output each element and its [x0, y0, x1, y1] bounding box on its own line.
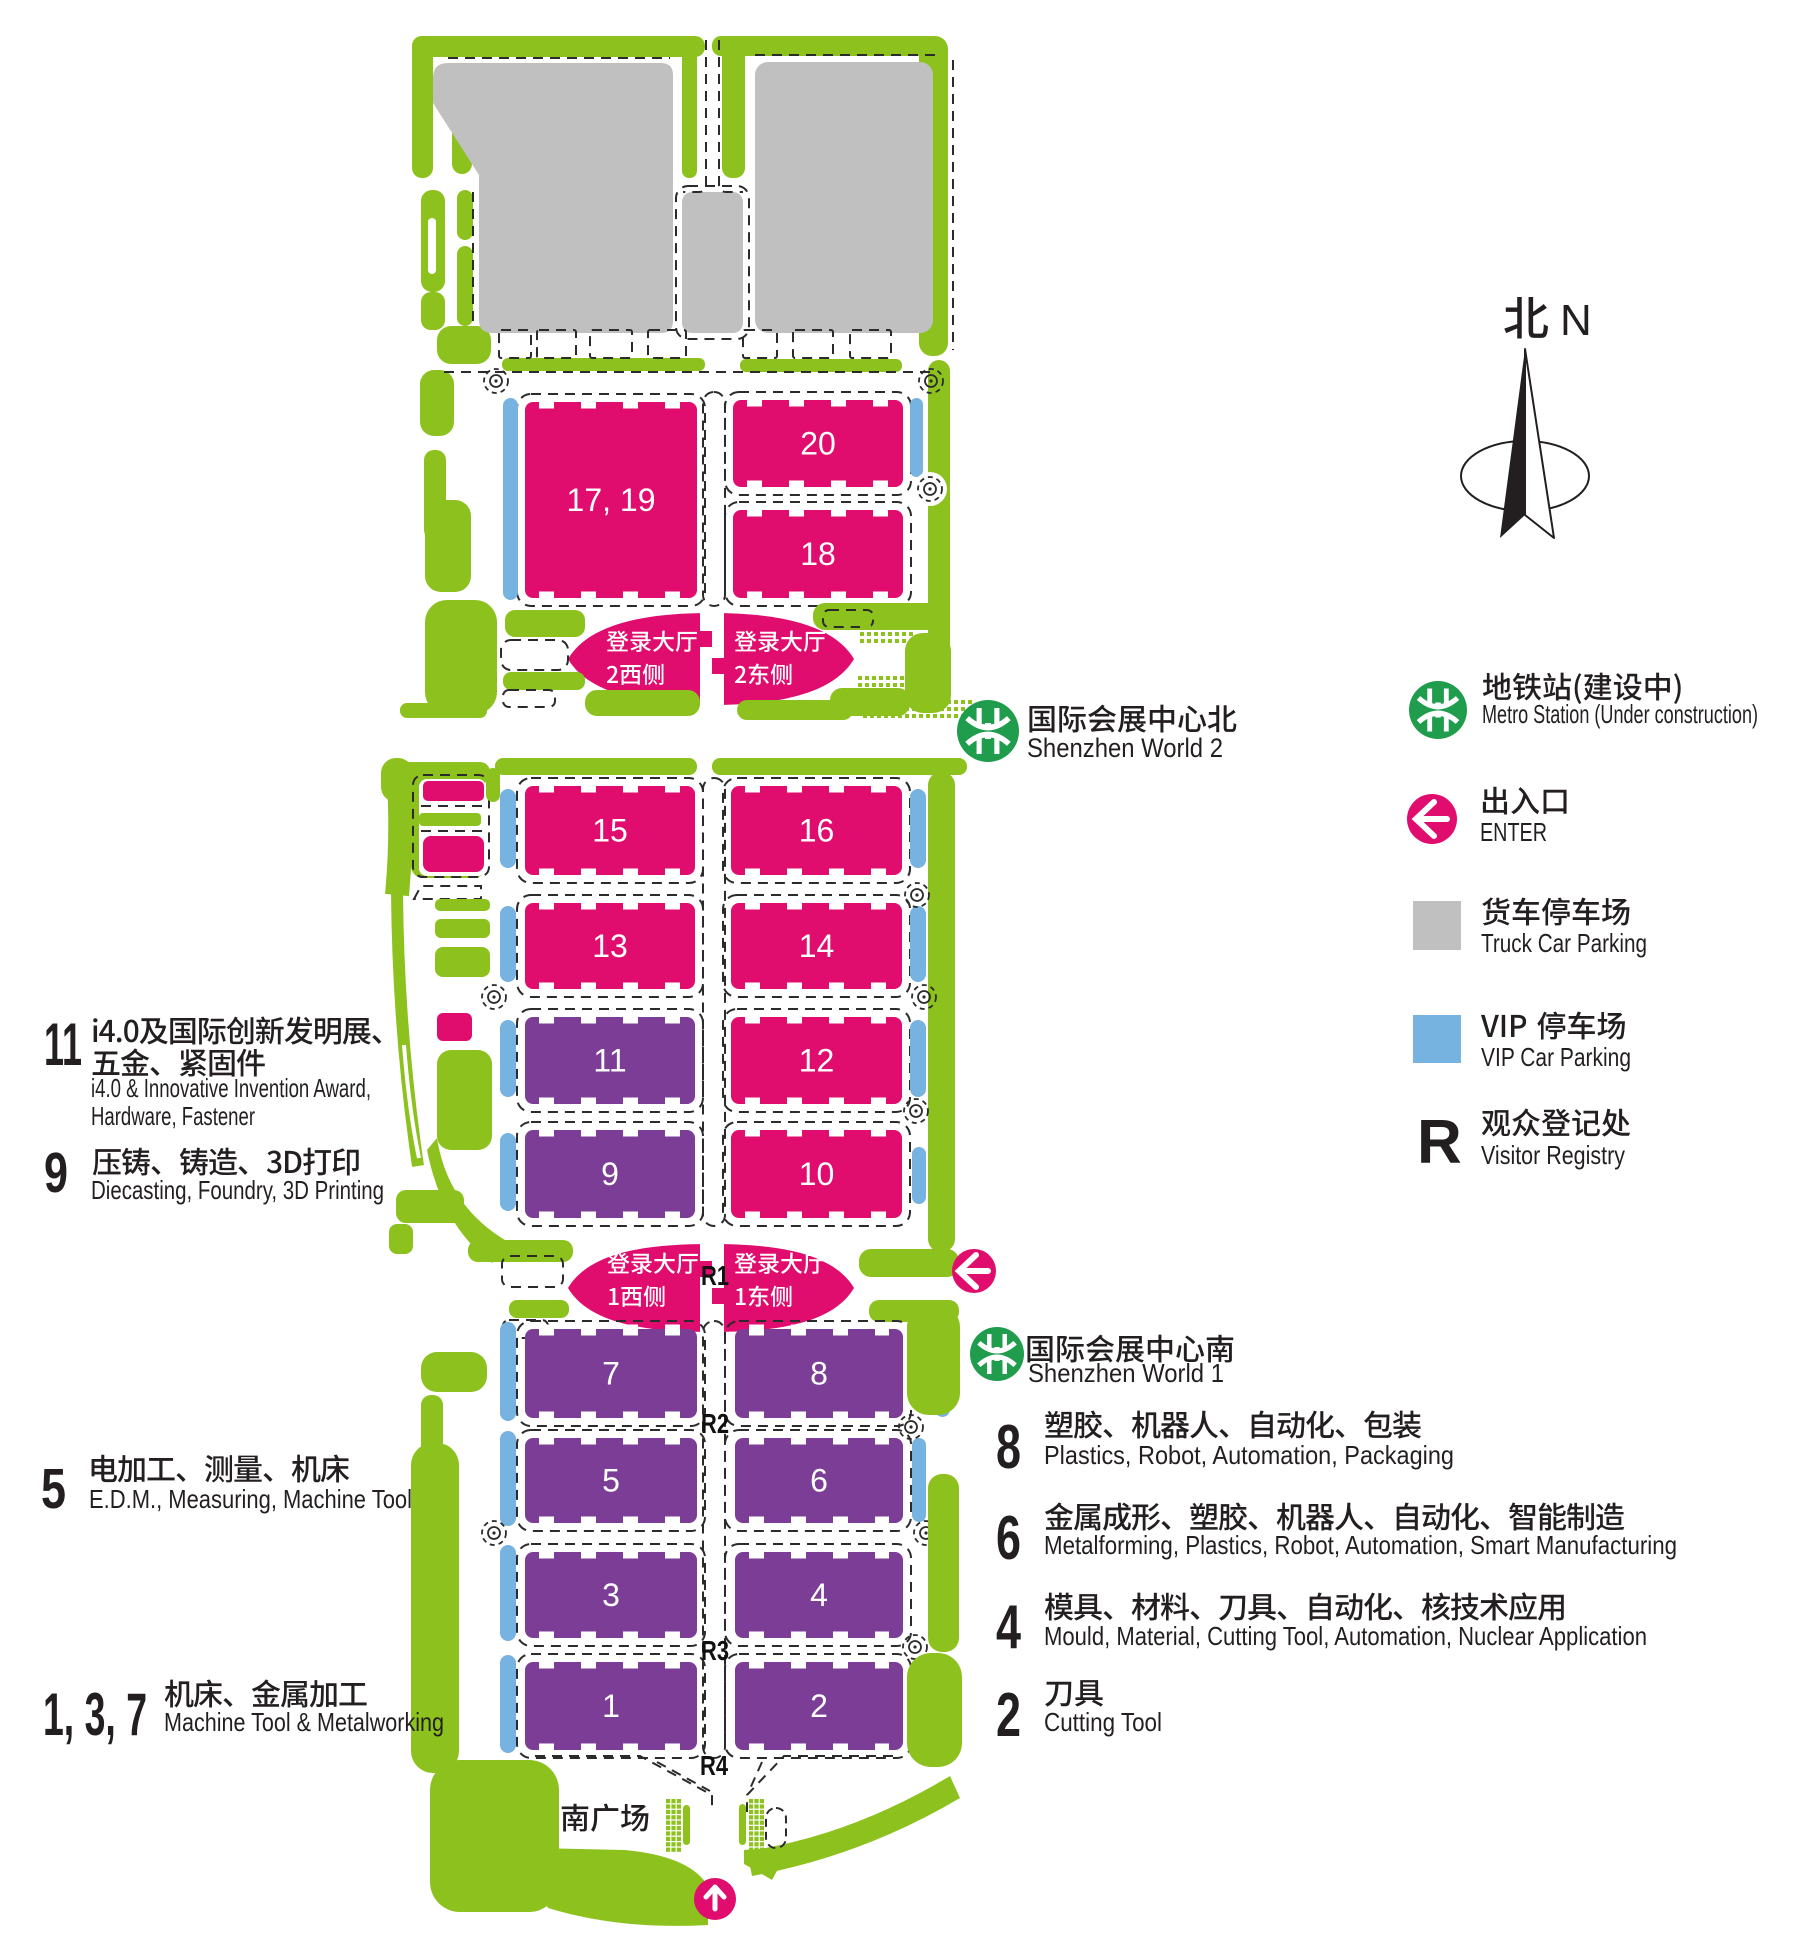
svg-text:11: 11 — [44, 1011, 82, 1078]
svg-text:E.D.M., Measuring, Machine Too: E.D.M., Measuring, Machine Tool — [89, 1484, 412, 1514]
svg-text:10: 10 — [799, 1156, 835, 1192]
svg-text:2: 2 — [996, 1681, 1021, 1750]
svg-text:5: 5 — [602, 1463, 620, 1499]
svg-text:17, 19: 17, 19 — [567, 482, 656, 518]
svg-text:Diecasting, Foundry, 3D Printi: Diecasting, Foundry, 3D Printing — [91, 1175, 384, 1205]
svg-text:R2: R2 — [701, 1408, 729, 1439]
svg-text:1: 1 — [602, 1688, 620, 1724]
svg-text:16: 16 — [799, 813, 835, 849]
svg-text:Hardware, Fastener: Hardware, Fastener — [91, 1101, 255, 1131]
svg-text:R1: R1 — [701, 1260, 729, 1291]
svg-text:14: 14 — [799, 928, 835, 964]
svg-text:20: 20 — [800, 426, 836, 462]
svg-text:Plastics, Robot, Automation, P: Plastics, Robot, Automation, Packaging — [1044, 1440, 1454, 1470]
svg-text:2: 2 — [810, 1688, 828, 1724]
svg-text:ENTER: ENTER — [1480, 817, 1547, 847]
svg-text:8: 8 — [996, 1413, 1021, 1482]
svg-text:12: 12 — [799, 1043, 835, 1079]
svg-text:8: 8 — [810, 1356, 828, 1392]
svg-text:18: 18 — [800, 536, 836, 572]
svg-text:1, 3, 7: 1, 3, 7 — [43, 1681, 147, 1748]
svg-text:Visitor Registry: Visitor Registry — [1481, 1140, 1625, 1170]
svg-text:11: 11 — [593, 1043, 626, 1079]
svg-text:Truck Car Parking: Truck Car Parking — [1481, 928, 1647, 958]
svg-text:Machine Tool & Metalworking: Machine Tool & Metalworking — [164, 1707, 444, 1737]
svg-text:R4: R4 — [700, 1750, 728, 1781]
svg-text:6: 6 — [996, 1504, 1021, 1573]
svg-text:6: 6 — [810, 1463, 828, 1499]
svg-text:N: N — [1560, 296, 1592, 345]
svg-text:i4.0 & Innovative Invention Aw: i4.0 & Innovative Invention Award, — [91, 1073, 371, 1103]
svg-text:9: 9 — [44, 1141, 68, 1205]
svg-text:Metalforming, Plastics, Robot,: Metalforming, Plastics, Robot, Automatio… — [1044, 1530, 1677, 1560]
svg-text:Cutting Tool: Cutting Tool — [1044, 1707, 1162, 1737]
svg-text:Metro Station (Under construct: Metro Station (Under construction) — [1482, 699, 1758, 729]
svg-text:Shenzhen World 2: Shenzhen World 2 — [1027, 733, 1223, 763]
svg-text:Shenzhen World 1: Shenzhen World 1 — [1028, 1358, 1224, 1388]
svg-text:R: R — [1417, 1108, 1462, 1177]
svg-text:Mould, Material, Cutting Tool,: Mould, Material, Cutting Tool, Automatio… — [1044, 1621, 1647, 1651]
svg-text:5: 5 — [41, 1457, 66, 1521]
svg-text:4: 4 — [996, 1593, 1021, 1662]
svg-text:9: 9 — [601, 1156, 619, 1192]
svg-text:7: 7 — [602, 1356, 620, 1392]
svg-text:3: 3 — [602, 1577, 620, 1613]
svg-text:13: 13 — [592, 928, 628, 964]
svg-text:4: 4 — [810, 1577, 828, 1613]
svg-text:15: 15 — [592, 813, 628, 849]
svg-text:R3: R3 — [701, 1635, 729, 1666]
svg-text:VIP Car Parking: VIP Car Parking — [1481, 1042, 1631, 1072]
